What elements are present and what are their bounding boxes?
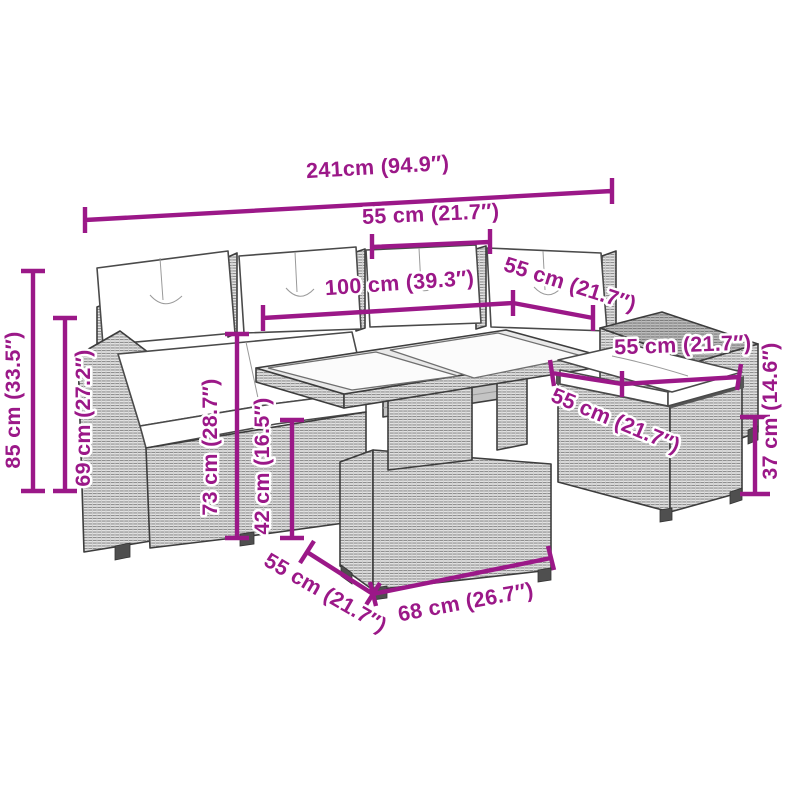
dim-overall-width: 241cm (94.9″) bbox=[85, 151, 612, 233]
dim-label: 55 cm (21.7″) bbox=[614, 331, 752, 360]
dim-label: 37 cm (14.6″) bbox=[758, 342, 782, 479]
dim-label: 69 cm (27.2″) bbox=[71, 349, 95, 486]
furniture-illustration bbox=[78, 245, 758, 600]
product-dimension-diagram: 241cm (94.9″) 55 cm (21.7″) 100 cm (39.3… bbox=[0, 0, 800, 800]
dim-label: 241cm (94.9″) bbox=[305, 151, 449, 183]
back-cushion bbox=[97, 251, 235, 345]
dim-label: 42 cm (16.5″) bbox=[250, 397, 274, 534]
sofa-foot bbox=[115, 543, 130, 560]
table-foot bbox=[538, 568, 551, 582]
dim-sofa-height: 85 cm (33.5″) bbox=[1, 271, 45, 491]
dim-label: 85 cm (33.5″) bbox=[1, 331, 25, 468]
stool-foot bbox=[660, 508, 672, 522]
dim-label: 55 cm (21.7″) bbox=[362, 199, 500, 229]
dim-armrest-height: 69 cm (27.2″) bbox=[53, 318, 95, 491]
dim-label: 73 cm (28.7″) bbox=[198, 378, 222, 515]
diagram-canvas: 241cm (94.9″) 55 cm (21.7″) 100 cm (39.3… bbox=[0, 0, 800, 800]
dim-line bbox=[85, 178, 612, 233]
table-base-front-face bbox=[373, 450, 551, 590]
